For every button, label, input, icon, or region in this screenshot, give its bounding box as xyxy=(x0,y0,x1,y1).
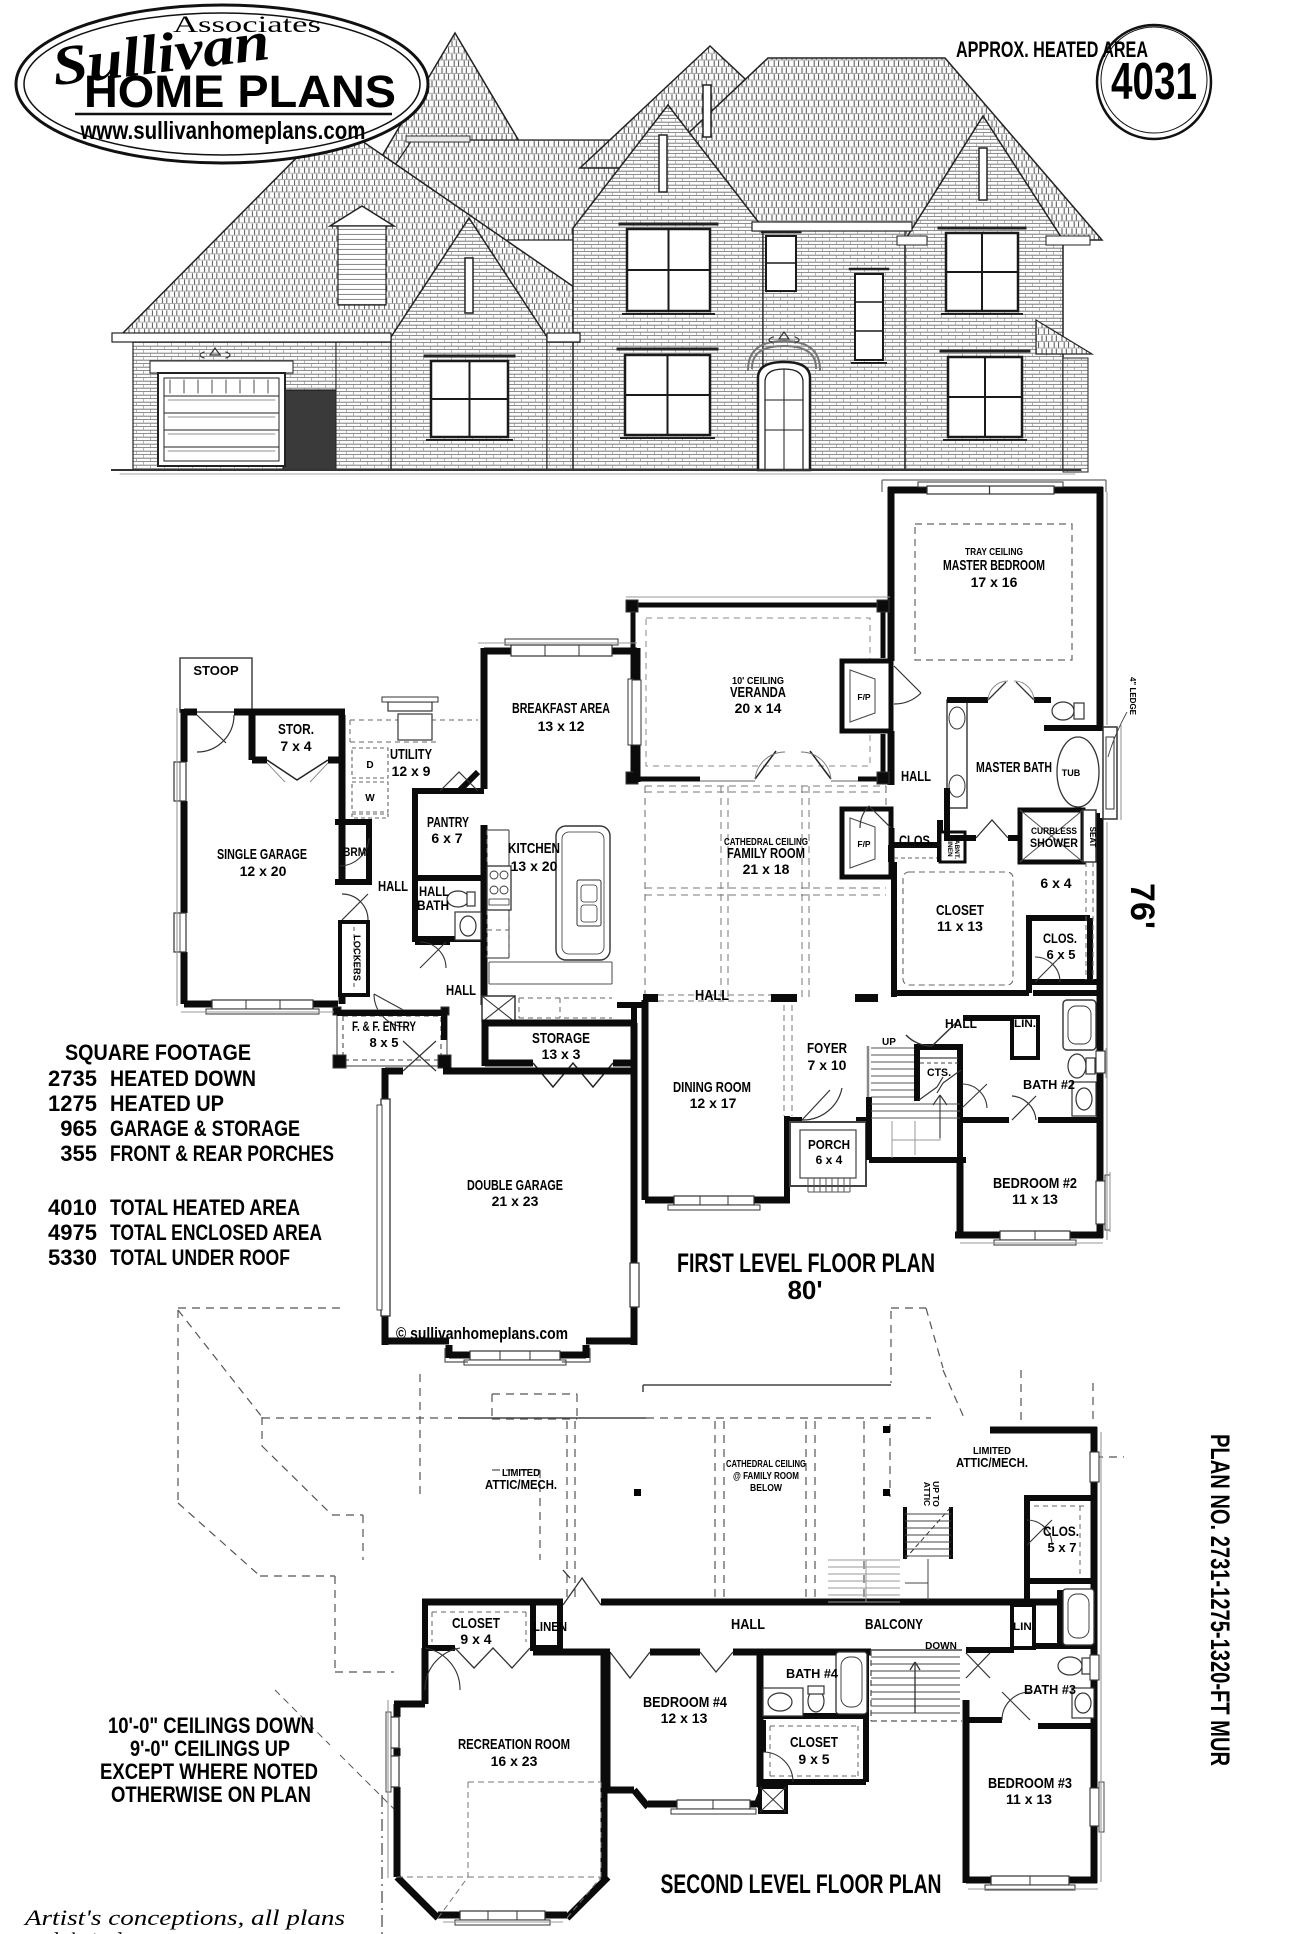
svg-text:DINING ROOM: DINING ROOM xyxy=(673,1079,751,1096)
svg-text:and their d: and their d xyxy=(25,1928,123,1934)
svg-text:DOWN: DOWN xyxy=(925,1641,957,1652)
svg-text:BEDROOM #2: BEDROOM #2 xyxy=(993,1175,1077,1192)
svg-text:HEATED UP: HEATED UP xyxy=(110,1091,224,1116)
svg-text:www.sullivanhomeplans.com: www.sullivanhomeplans.com xyxy=(80,117,366,145)
svg-text:13 x 20: 13 x 20 xyxy=(511,858,558,874)
svg-text:LIN.: LIN. xyxy=(1013,1621,1035,1633)
svg-text:76': 76' xyxy=(1123,883,1161,929)
svg-text:21 x 18: 21 x 18 xyxy=(743,861,790,877)
svg-text:12 x 20: 12 x 20 xyxy=(240,863,287,879)
svg-text:VERANDA: VERANDA xyxy=(730,684,786,701)
svg-text:FRONT & REAR PORCHES: FRONT & REAR PORCHES xyxy=(110,1141,334,1166)
svg-text:9 x 4: 9 x 4 xyxy=(460,1631,491,1647)
svg-text:CLOSET: CLOSET xyxy=(936,902,984,919)
svg-text:PORCH: PORCH xyxy=(808,1137,850,1152)
svg-text:LIN.: LIN. xyxy=(1014,1018,1036,1030)
svg-text:F/P: F/P xyxy=(857,839,871,849)
svg-text:KITCHEN: KITCHEN xyxy=(508,840,560,857)
svg-text:11 x 13: 11 x 13 xyxy=(1006,1791,1052,1807)
svg-text:HALL: HALL xyxy=(731,1616,765,1633)
svg-text:HOME PLANS: HOME PLANS xyxy=(84,66,396,117)
svg-text:PANTRY: PANTRY xyxy=(427,814,469,831)
svg-text:OTHERWISE ON PLAN: OTHERWISE ON PLAN xyxy=(111,1782,311,1807)
svg-text:CLOS.: CLOS. xyxy=(899,832,933,848)
svg-text:11 x 13: 11 x 13 xyxy=(1012,1191,1058,1207)
svg-text:6 x 4: 6 x 4 xyxy=(1040,875,1071,891)
svg-text:TOTAL HEATED AREA: TOTAL HEATED AREA xyxy=(110,1195,300,1220)
svg-text:12 x 17: 12 x 17 xyxy=(690,1095,737,1111)
svg-text:6 x 7: 6 x 7 xyxy=(431,830,462,846)
svg-text:BEDROOM #4: BEDROOM #4 xyxy=(643,1694,728,1711)
svg-text:6 x 5: 6 x 5 xyxy=(1047,947,1076,962)
svg-text:HALL: HALL xyxy=(378,878,408,895)
svg-text:4010: 4010 xyxy=(48,1195,97,1220)
svg-text:13 x 12: 13 x 12 xyxy=(538,718,585,734)
svg-text:W: W xyxy=(365,793,375,804)
svg-text:Artist's conceptions, all p: Artist's conceptions, all plans xyxy=(23,1905,345,1930)
svg-text:16 x 23: 16 x 23 xyxy=(491,1753,538,1769)
svg-text:LOCKERS: LOCKERS xyxy=(352,935,362,981)
svg-text:HEATED DOWN: HEATED DOWN xyxy=(110,1066,256,1091)
svg-text:LINEN: LINEN xyxy=(533,1619,567,1634)
svg-text:BATH #3: BATH #3 xyxy=(1024,1682,1076,1697)
svg-text:MASTER BEDROOM: MASTER BEDROOM xyxy=(943,557,1045,574)
svg-text:4975: 4975 xyxy=(48,1220,97,1245)
svg-text:F. & F. ENTRY: F. & F. ENTRY xyxy=(352,1019,416,1034)
svg-text:8 x 5: 8 x 5 xyxy=(370,1035,399,1050)
svg-text:9 x 5: 9 x 5 xyxy=(798,1751,829,1767)
svg-text:6 x 4: 6 x 4 xyxy=(816,1153,843,1167)
svg-text:BELOW: BELOW xyxy=(750,1483,782,1494)
svg-text:11 x 13: 11 x 13 xyxy=(937,918,983,934)
svg-text:SECOND LEVEL FLOOR PLAN: SECOND LEVEL FLOOR PLAN xyxy=(661,1869,942,1899)
svg-text:CABNT.: CABNT. xyxy=(953,835,960,859)
svg-text:BATH: BATH xyxy=(417,897,449,913)
svg-text:7 x 10: 7 x 10 xyxy=(808,1057,847,1073)
svg-text:UTILITY: UTILITY xyxy=(390,746,432,763)
svg-text:SQUARE FOOTAGE: SQUARE FOOTAGE xyxy=(65,1040,251,1065)
svg-text:965: 965 xyxy=(60,1116,97,1141)
svg-text:EXCEPT WHERE NOTED: EXCEPT WHERE NOTED xyxy=(100,1759,318,1784)
svg-text:PLAN NO. 2731-1275-1320-FT M: PLAN NO. 2731-1275-1320-FT MUR xyxy=(1205,1434,1235,1766)
svg-text:BREAKFAST AREA: BREAKFAST AREA xyxy=(512,700,610,717)
svg-text:1275: 1275 xyxy=(48,1091,97,1116)
svg-text:D: D xyxy=(366,760,373,771)
svg-text:FIRST LEVEL FLOOR PLAN: FIRST LEVEL FLOOR PLAN xyxy=(677,1248,935,1278)
svg-text:HALL: HALL xyxy=(945,1016,977,1031)
svg-text:17 x 16: 17 x 16 xyxy=(971,574,1018,590)
svg-text:80': 80' xyxy=(787,1275,822,1305)
svg-text:5330: 5330 xyxy=(48,1245,97,1270)
svg-text:12 x 13: 12 x 13 xyxy=(661,1710,708,1726)
svg-text:HALL: HALL xyxy=(695,987,729,1004)
svg-text:TOTAL UNDER ROOF: TOTAL UNDER ROOF xyxy=(110,1245,290,1270)
svg-text:ATTIC/MECH.: ATTIC/MECH. xyxy=(956,1455,1028,1470)
svg-text:BALCONY: BALCONY xyxy=(865,1616,923,1633)
svg-text:MASTER BATH: MASTER BATH xyxy=(976,759,1052,776)
svg-text:SINGLE GARAGE: SINGLE GARAGE xyxy=(217,846,307,863)
svg-text:CLOS.: CLOS. xyxy=(1043,930,1077,946)
svg-text:FOYER: FOYER xyxy=(807,1040,847,1057)
svg-text:5 x 7: 5 x 7 xyxy=(1048,1540,1077,1555)
svg-text:CATHEDRAL CEILING: CATHEDRAL CEILING xyxy=(726,1459,806,1470)
svg-text:HALL: HALL xyxy=(446,982,476,999)
svg-text:13 x 3: 13 x 3 xyxy=(542,1046,581,1062)
svg-text:HALL: HALL xyxy=(901,768,931,785)
svg-text:TUB: TUB xyxy=(1062,768,1081,778)
svg-text:CLOSET: CLOSET xyxy=(790,1734,838,1751)
svg-text:BATH #4: BATH #4 xyxy=(786,1666,839,1681)
svg-text:ATTIC: ATTIC xyxy=(922,1482,932,1506)
svg-text:BATH #2: BATH #2 xyxy=(1023,1077,1075,1092)
svg-text:2735: 2735 xyxy=(48,1066,97,1091)
svg-text:@ FAMILY ROOM: @ FAMILY ROOM xyxy=(733,1471,799,1482)
svg-text:DOUBLE GARAGE: DOUBLE GARAGE xyxy=(467,1177,563,1194)
svg-text:355: 355 xyxy=(60,1141,97,1166)
svg-text:RECREATION ROOM: RECREATION ROOM xyxy=(458,1736,570,1753)
svg-text:SEAT: SEAT xyxy=(1088,827,1097,848)
svg-text:LINEN: LINEN xyxy=(946,837,953,857)
svg-text:CTS.: CTS. xyxy=(927,1067,951,1079)
svg-text:BEDROOM #3: BEDROOM #3 xyxy=(988,1775,1072,1792)
svg-text:ATTIC/MECH.: ATTIC/MECH. xyxy=(485,1477,557,1492)
svg-text:FAMILY ROOM: FAMILY ROOM xyxy=(727,845,805,862)
svg-text:SHOWER: SHOWER xyxy=(1030,836,1078,850)
svg-text:4" LEDGE: 4" LEDGE xyxy=(1128,677,1137,716)
svg-text:9'-0" CEILINGS UP: 9'-0" CEILINGS UP xyxy=(130,1736,290,1761)
svg-text:STORAGE: STORAGE xyxy=(532,1030,590,1047)
svg-text:7 x 4: 7 x 4 xyxy=(280,738,311,754)
svg-text:UP: UP xyxy=(882,1037,896,1048)
svg-text:CLOSET: CLOSET xyxy=(452,1615,500,1632)
svg-text:F/P: F/P xyxy=(857,692,871,702)
svg-text:GARAGE & STORAGE: GARAGE & STORAGE xyxy=(110,1116,300,1141)
svg-text:BRM.: BRM. xyxy=(343,845,369,859)
svg-text:CLOS.: CLOS. xyxy=(1043,1523,1079,1539)
svg-text:20 x 14: 20 x 14 xyxy=(735,700,782,716)
svg-text:STOR.: STOR. xyxy=(278,721,314,738)
svg-text:21 x 23: 21 x 23 xyxy=(492,1193,539,1209)
svg-text:TOTAL ENCLOSED AREA: TOTAL ENCLOSED AREA xyxy=(110,1220,322,1245)
svg-text:4031: 4031 xyxy=(1111,53,1197,111)
svg-text:10'-0" CEILINGS DOWN: 10'-0" CEILINGS DOWN xyxy=(108,1713,314,1738)
svg-text:STOOP: STOOP xyxy=(193,663,239,678)
svg-text:12 x 9: 12 x 9 xyxy=(392,763,431,779)
